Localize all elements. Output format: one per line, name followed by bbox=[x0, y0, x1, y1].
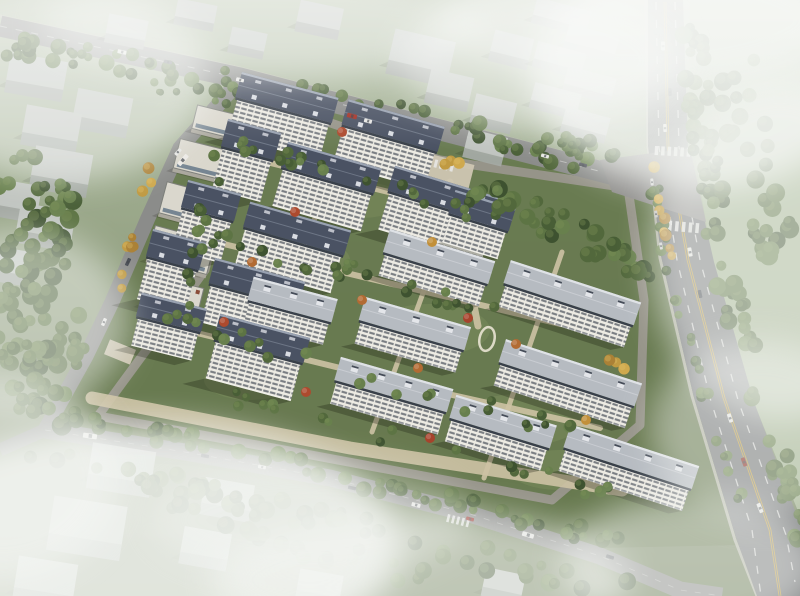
accent-tree bbox=[219, 317, 229, 327]
haze-cloud bbox=[150, 460, 470, 580]
accent-tree bbox=[301, 387, 311, 397]
accent-tree bbox=[427, 237, 437, 247]
accent-tree bbox=[463, 313, 473, 323]
accent-tree bbox=[511, 339, 521, 349]
top-atmosphere-fade bbox=[0, 0, 800, 150]
accent-tree bbox=[413, 363, 423, 373]
accent-tree bbox=[357, 295, 367, 305]
residential-compound-aerial-view bbox=[0, 0, 800, 596]
aerial-rendering-canvas bbox=[0, 0, 800, 596]
accent-tree bbox=[247, 257, 257, 267]
accent-tree bbox=[581, 415, 591, 425]
accent-tree bbox=[290, 207, 300, 217]
accent-tree bbox=[425, 433, 435, 443]
